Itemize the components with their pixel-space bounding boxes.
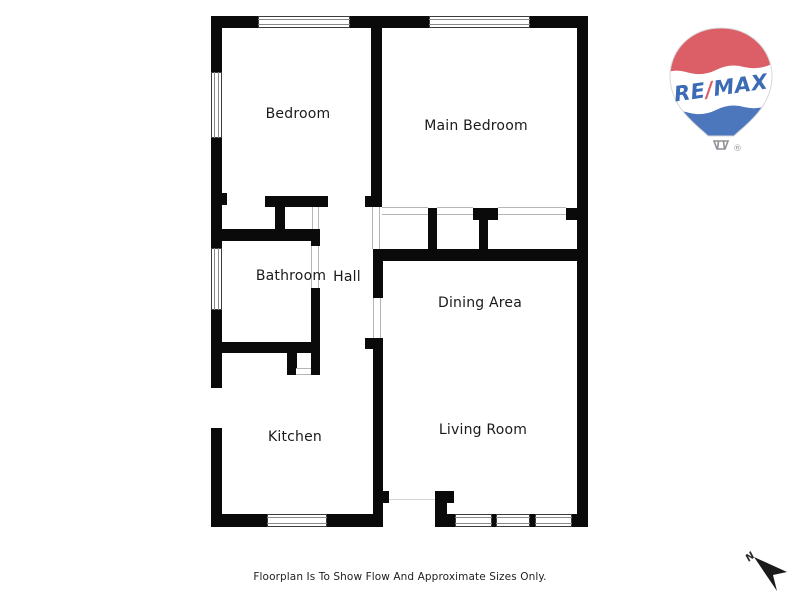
window-kitchen-bottom — [267, 514, 327, 527]
remax-balloon-logo: RE/MAX ® — [664, 24, 784, 156]
front-door-threshold — [389, 499, 435, 500]
wall-pantry-right — [311, 353, 320, 375]
wall-closet-t-bar — [473, 208, 498, 220]
registered-mark: ® — [733, 144, 742, 154]
wall-closet-stub-right — [566, 208, 578, 220]
room-label-dining-area: Dining Area — [438, 295, 522, 311]
window-bedroom-left — [211, 72, 222, 138]
floorplan-page: Bedroom Main Bedroom Bathroom Hall Dinin… — [0, 0, 800, 600]
wall-dining-top — [383, 249, 588, 261]
wall-entry-notch — [383, 491, 389, 503]
room-label-hall: Hall — [333, 269, 361, 285]
room-label-bedroom: Bedroom — [266, 106, 331, 122]
room-label-living-room: Living Room — [439, 422, 527, 438]
wall-closet-stub-1 — [428, 208, 437, 250]
wall-entry-left — [435, 491, 447, 527]
opening-hall-cupboard — [312, 207, 319, 229]
window-bathroom-left — [211, 248, 222, 310]
window-living-bottom-2 — [496, 514, 530, 527]
opening-closet-2 — [498, 207, 566, 215]
window-living-bottom-3 — [535, 514, 572, 527]
north-label: N — [744, 550, 758, 564]
wall-bedroom-divider-foot — [365, 196, 372, 207]
opening-closet-1 — [437, 207, 473, 215]
opening-main-bedroom-entry — [382, 207, 428, 215]
window-bedroom-top — [258, 16, 350, 28]
wall-closet-t-stem — [479, 220, 488, 250]
room-label-main-bedroom: Main Bedroom — [424, 118, 528, 134]
wall-bathroom-right — [311, 288, 320, 345]
balloon-basket — [714, 141, 728, 149]
opening-hall-dining — [373, 298, 381, 338]
wall-hall-dining-upper — [373, 249, 383, 298]
footer-disclaimer: Floorplan Is To Show Flow And Approximat… — [0, 571, 800, 583]
wall-bathroom-bottom — [218, 342, 320, 353]
wall-entry-cap — [447, 491, 454, 503]
wall-kitchen-divider-foot — [365, 338, 373, 349]
opening-pantry — [296, 368, 311, 375]
opening-kitchen-back-door — [211, 388, 222, 428]
window-living-bottom-1 — [455, 514, 492, 527]
window-main-bedroom-top — [429, 16, 530, 28]
wall-bathroom-top — [220, 229, 320, 241]
opening-hall-main-bedroom — [372, 207, 380, 249]
room-label-kitchen: Kitchen — [268, 429, 322, 445]
wall-bathroom-top-cap — [311, 229, 320, 246]
wall-left-stub — [222, 193, 227, 205]
room-label-bathroom: Bathroom — [256, 268, 326, 284]
wall-kitchen-divider — [373, 338, 383, 527]
wall-bedroom-divider — [371, 16, 382, 207]
wall-outer-right — [577, 16, 588, 527]
